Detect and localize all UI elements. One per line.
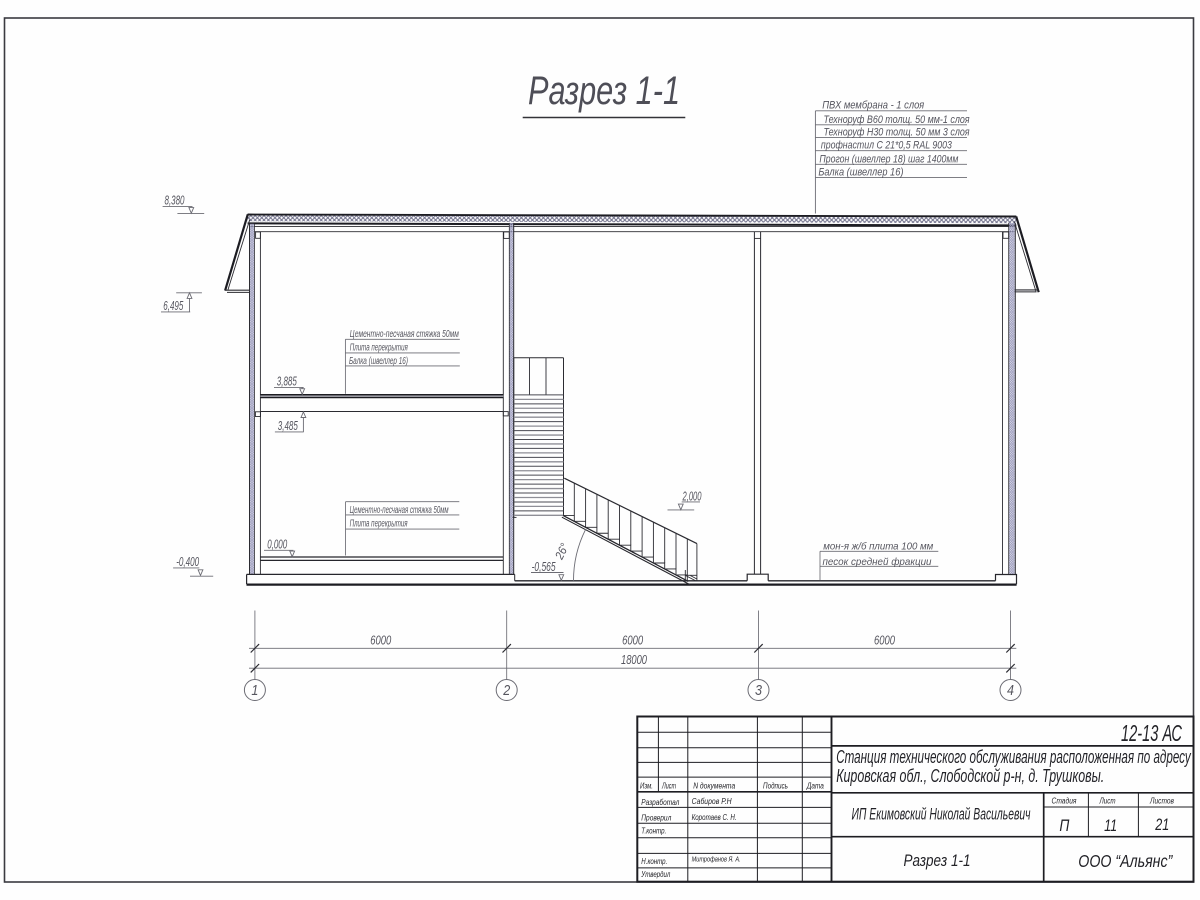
svg-text:Цементно-песчаная стяжка 50мм: Цементно-песчаная стяжка 50мм bbox=[350, 329, 459, 340]
svg-text:Сабиров Р.Н: Сабиров Р.Н bbox=[692, 797, 732, 806]
svg-text:П: П bbox=[1059, 816, 1070, 835]
svg-text:Изм.: Изм. bbox=[640, 781, 653, 790]
svg-text:6,495: 6,495 bbox=[163, 299, 183, 313]
svg-text:-0,565: -0,565 bbox=[532, 560, 556, 574]
svg-text:Техноруф В60 толщ. 50 мм-1 сло: Техноруф В60 толщ. 50 мм-1 слоя bbox=[824, 114, 970, 126]
svg-text:Утвердил: Утвердил bbox=[641, 870, 671, 879]
svg-text:6000: 6000 bbox=[874, 633, 895, 647]
svg-text:Разрез 1-1: Разрез 1-1 bbox=[528, 69, 680, 113]
svg-text:11: 11 bbox=[1104, 816, 1117, 835]
svg-text:Коротаев С. Н.: Коротаев С. Н. bbox=[692, 813, 737, 822]
svg-text:-0,400: -0,400 bbox=[176, 555, 199, 569]
svg-text:профнастил С 21*0,5 RAL 9003: профнастил С 21*0,5 RAL 9003 bbox=[821, 140, 952, 152]
svg-text:8,380: 8,380 bbox=[165, 194, 185, 208]
svg-text:3,485: 3,485 bbox=[278, 419, 298, 433]
svg-text:Цементно-песчаная стяжка 50мм: Цементно-песчаная стяжка 50мм bbox=[350, 505, 449, 516]
svg-text:Подпись: Подпись bbox=[763, 781, 788, 790]
svg-text:Плита перекрытия: Плита перекрытия bbox=[350, 518, 408, 529]
svg-text:Балка (швеллер 16): Балка (швеллер 16) bbox=[349, 356, 408, 367]
svg-text:3: 3 bbox=[755, 683, 762, 699]
svg-text:Станция технического обслужива: Станция технического обслуживания распол… bbox=[836, 747, 1191, 767]
svg-text:2: 2 bbox=[502, 683, 510, 699]
svg-text:1: 1 bbox=[251, 683, 258, 699]
svg-text:Листов: Листов bbox=[1149, 797, 1174, 806]
svg-text:N документа: N документа bbox=[693, 781, 736, 790]
svg-text:Лист: Лист bbox=[1099, 797, 1116, 806]
svg-text:Кировская обл., Слободской р-н: Кировская обл., Слободской р-н, д. Трушк… bbox=[836, 766, 1104, 786]
svg-text:Плита перекрытия: Плита перекрытия bbox=[350, 343, 408, 354]
svg-text:18000: 18000 bbox=[621, 653, 647, 667]
svg-text:Лист: Лист bbox=[661, 781, 676, 790]
svg-text:Техноруф Н30 толщ. 50 мм 3 сло: Техноруф Н30 толщ. 50 мм 3 слоя bbox=[824, 126, 970, 138]
svg-text:0,000: 0,000 bbox=[267, 537, 287, 551]
svg-text:песок средней фракции: песок средней фракции bbox=[823, 556, 932, 568]
svg-text:Митрофанов Я. А.: Митрофанов Я. А. bbox=[692, 855, 741, 864]
svg-text:3,885: 3,885 bbox=[277, 375, 297, 389]
svg-text:ООО “Альянс”: ООО “Альянс” bbox=[1078, 851, 1173, 871]
svg-text:2,000: 2,000 bbox=[682, 489, 702, 503]
svg-text:4: 4 bbox=[1007, 683, 1014, 699]
svg-text:21: 21 bbox=[1155, 815, 1170, 834]
svg-text:12-13 АС: 12-13 АС bbox=[1121, 720, 1182, 746]
svg-text:мон-я ж/б плита 100 мм: мон-я ж/б плита 100 мм bbox=[823, 540, 933, 552]
svg-text:Балка (швеллер 16): Балка (швеллер 16) bbox=[818, 167, 903, 179]
svg-text:Стадия: Стадия bbox=[1052, 797, 1078, 806]
svg-text:Разрез 1-1: Разрез 1-1 bbox=[904, 852, 971, 870]
svg-text:Прогон (швеллер 18) шаг 1400мм: Прогон (швеллер 18) шаг 1400мм bbox=[819, 153, 958, 165]
svg-text:6000: 6000 bbox=[370, 633, 391, 647]
svg-text:Разработал: Разработал bbox=[641, 798, 680, 807]
svg-text:Дата: Дата bbox=[806, 781, 824, 790]
svg-text:6000: 6000 bbox=[622, 633, 643, 647]
svg-text:Проверил: Проверил bbox=[641, 813, 671, 822]
svg-text:ПВХ мембрана - 1 слоя: ПВХ мембрана - 1 слоя bbox=[822, 100, 924, 112]
svg-text:Н.контр.: Н.контр. bbox=[641, 857, 667, 866]
svg-text:ИП Екимовский Николай Васильев: ИП Екимовский Николай Васильевич bbox=[852, 806, 1031, 824]
svg-text:Т.контр.: Т.контр. bbox=[641, 827, 666, 836]
